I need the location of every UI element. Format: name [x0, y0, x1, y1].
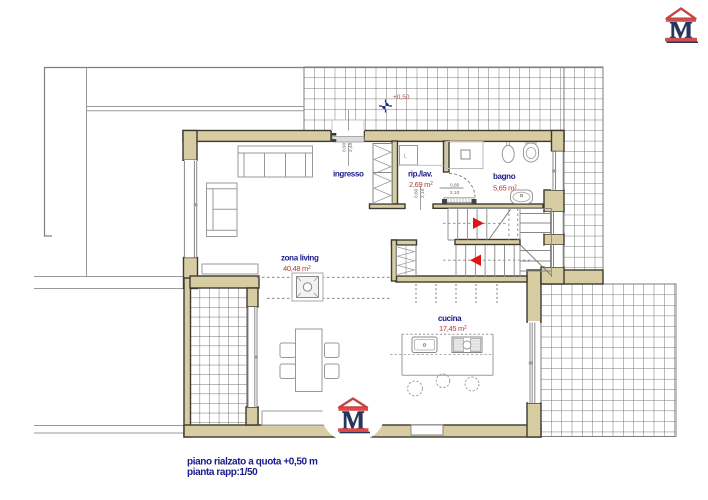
- svg-text:17,45 m2: 17,45 m2: [439, 324, 467, 333]
- svg-text:5,65 m2: 5,65 m2: [493, 184, 517, 193]
- svg-text:rip./lav.: rip./lav.: [408, 170, 432, 179]
- svg-text:2,10: 2,10: [420, 188, 426, 198]
- svg-text:+0,50: +0,50: [393, 94, 410, 101]
- svg-text:40,48 m2: 40,48 m2: [283, 264, 311, 273]
- svg-text:zona living: zona living: [281, 254, 319, 263]
- svg-text:0,80: 0,80: [450, 183, 460, 189]
- svg-text:piano rialzato a quota +0,50 m: piano rialzato a quota +0,50 m: [187, 457, 318, 468]
- svg-text:bagno: bagno: [493, 172, 516, 181]
- svg-text:2,40: 2,40: [348, 142, 354, 152]
- svg-text:ingresso: ingresso: [333, 170, 364, 179]
- svg-text:pianta rapp:1/50: pianta rapp:1/50: [187, 467, 258, 478]
- svg-text:L: L: [404, 154, 407, 160]
- svg-text:cucina: cucina: [438, 314, 462, 323]
- svg-text:0,90: 0,90: [342, 142, 348, 152]
- svg-text:0,60: 0,60: [414, 188, 420, 198]
- svg-text:2,69 m2: 2,69 m2: [409, 180, 433, 189]
- svg-text:2,10: 2,10: [450, 190, 460, 196]
